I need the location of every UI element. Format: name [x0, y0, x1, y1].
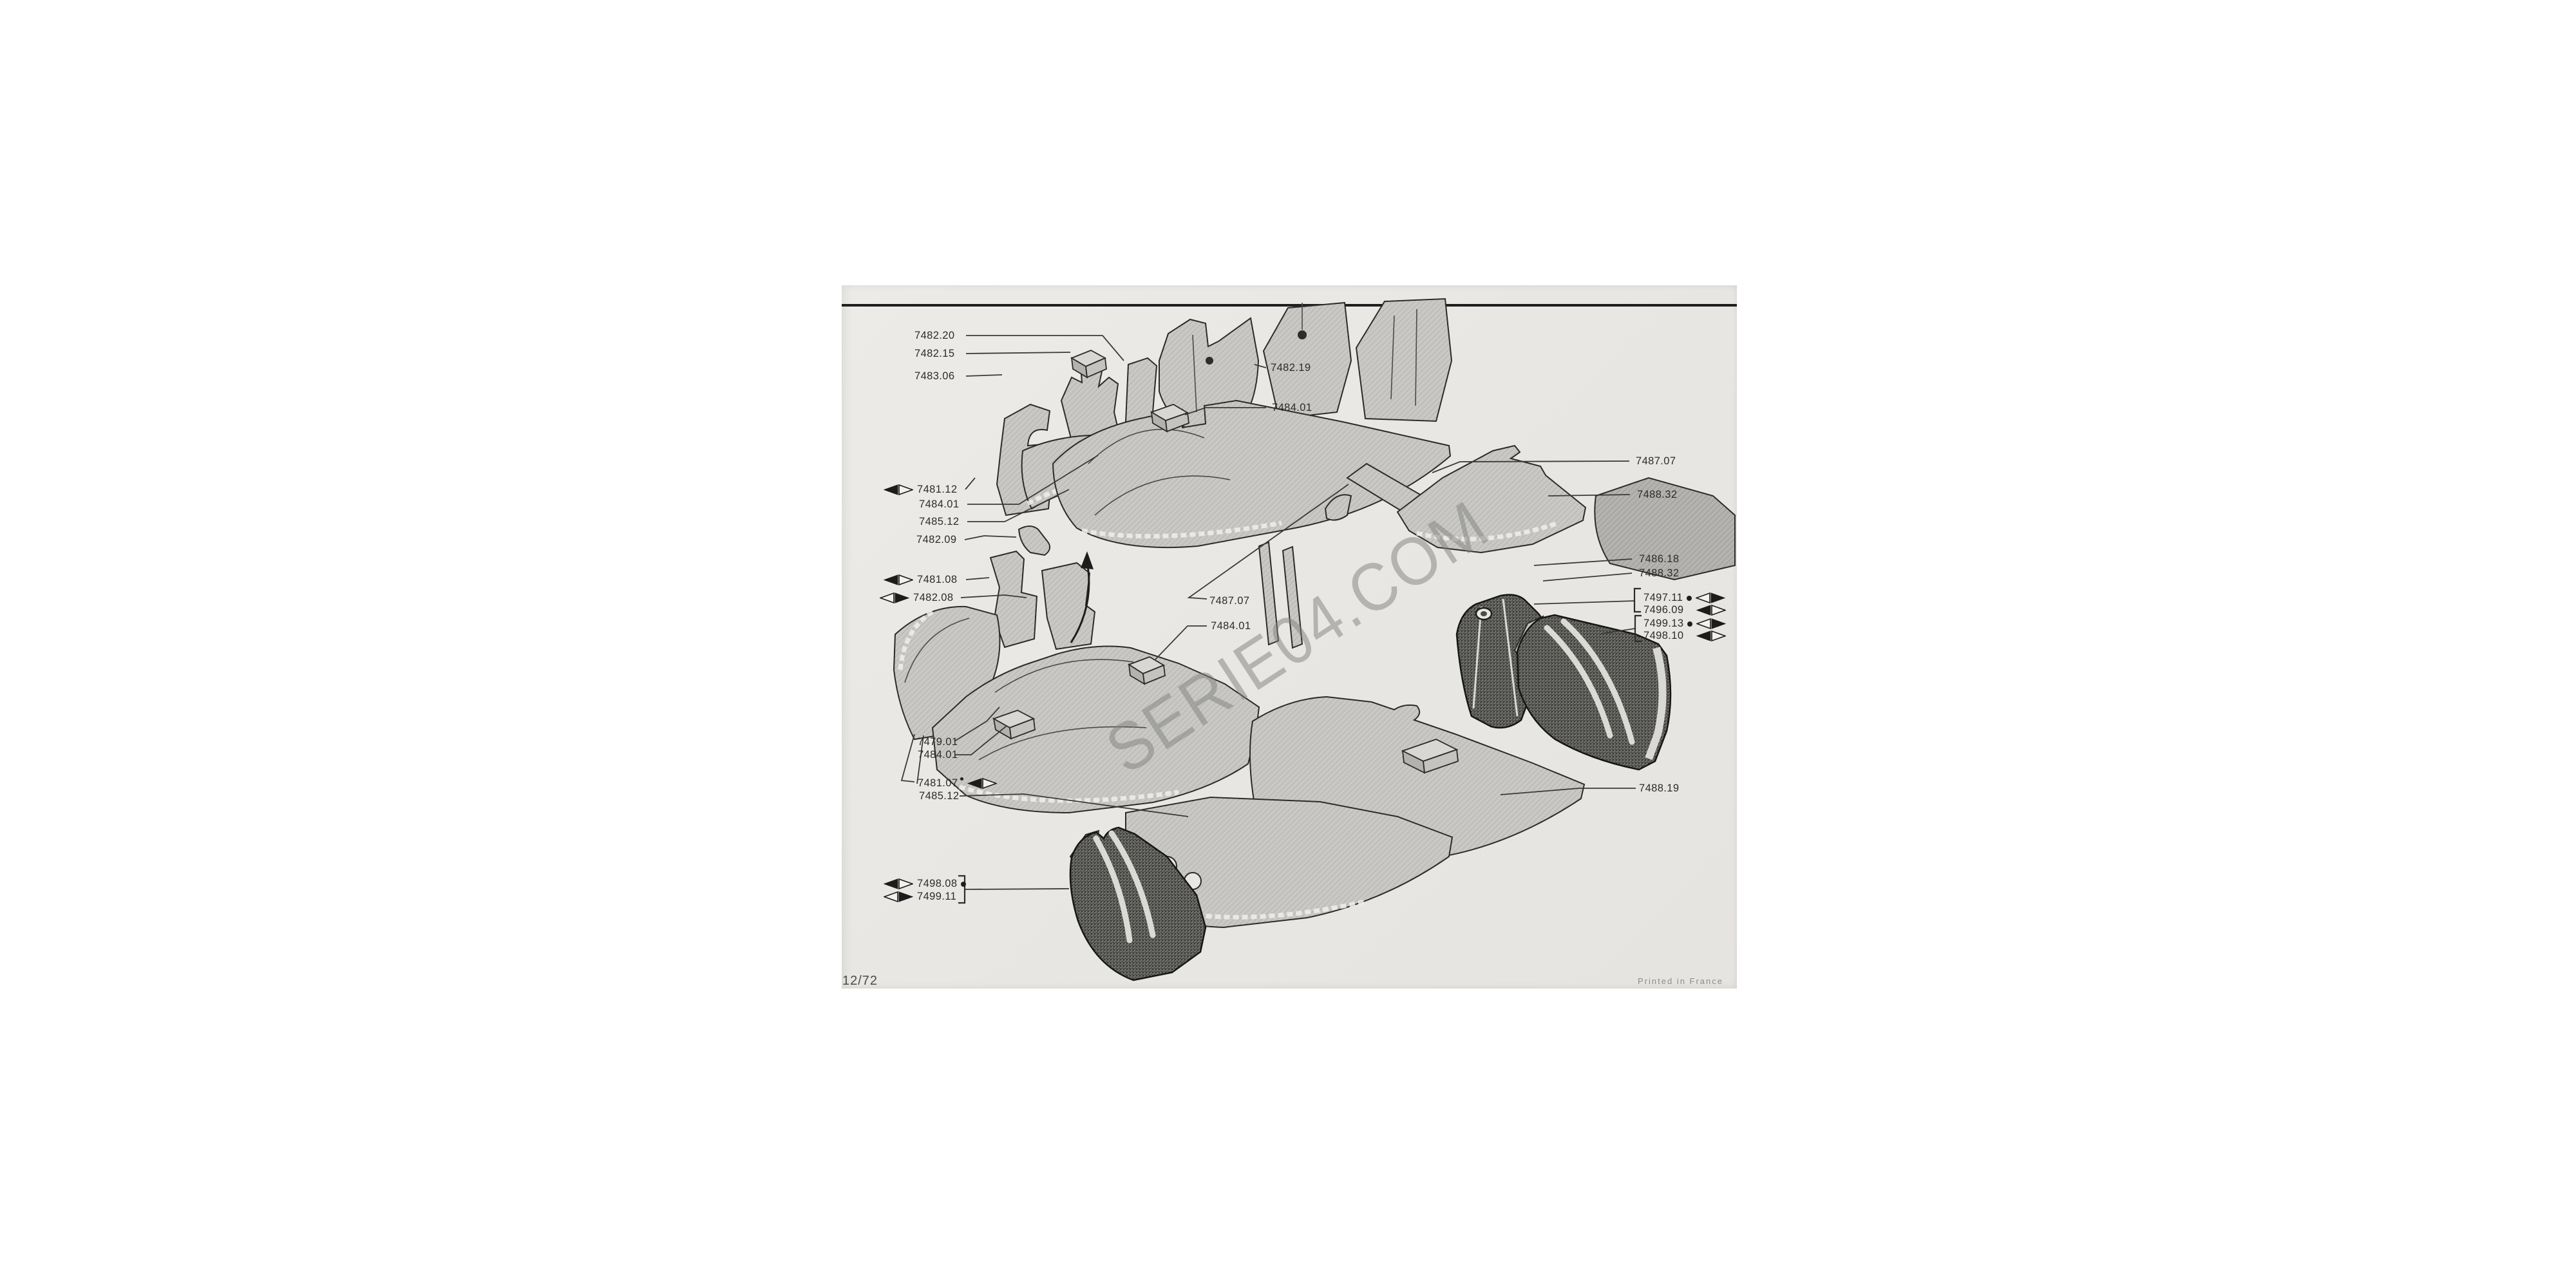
dot-marker	[961, 882, 966, 887]
parts-diagram	[0, 0, 2576, 1288]
printed-in-france-note: Printed in France	[1638, 976, 1723, 986]
floor-carpet-group	[1022, 401, 1735, 648]
part-label: 7488.32	[1637, 489, 1677, 501]
leader-7483-06	[966, 375, 1002, 376]
part-label: 7484.01	[1211, 620, 1251, 632]
part-label: 7484.01	[918, 749, 958, 761]
firewall-panel	[1264, 303, 1351, 419]
direction-arrow-left-icon	[884, 878, 913, 889]
leader-7482-09	[965, 536, 1016, 540]
part-label: 7482.20	[914, 330, 954, 342]
part-label: 7488.19	[1639, 782, 1679, 795]
column-grommet-hole	[1481, 611, 1487, 616]
pull-arrowhead	[1081, 551, 1094, 569]
leader-7481-08	[966, 578, 989, 580]
leader-7498-group	[965, 889, 1069, 889]
part-label: 7487.07	[1209, 595, 1249, 607]
part-label: 7498.10	[1643, 630, 1726, 642]
part-label: 7485.12	[919, 516, 959, 528]
part-label: 7479.01	[918, 736, 958, 748]
leader-7481-07	[902, 734, 914, 782]
part-label: 7482.19	[1271, 362, 1311, 374]
direction-arrow-right-icon	[884, 891, 913, 902]
leader-7482-15	[966, 352, 1070, 354]
part-label: 7499.11	[884, 891, 956, 903]
direction-arrow-right-icon	[880, 592, 909, 603]
part-label: 7485.12	[919, 790, 959, 802]
direction-arrow-left-icon	[884, 574, 913, 585]
part-label: 7488.32	[1639, 567, 1679, 580]
leader-7488-32-b	[1543, 573, 1632, 581]
part-label: 7482.08	[880, 592, 953, 604]
strap	[1283, 547, 1302, 648]
bracket-7497-group	[1634, 589, 1641, 612]
direction-arrow-right-icon	[1696, 592, 1725, 603]
part-label: 7481.07	[918, 777, 997, 790]
firewall-panel	[1356, 299, 1452, 421]
direction-arrow-left-icon	[967, 778, 997, 789]
direction-arrow-left-icon	[884, 484, 913, 495]
part-label: 7484.01	[1272, 402, 1312, 414]
part-label: 7499.13	[1643, 618, 1726, 630]
direction-arrow-left-icon	[1696, 630, 1726, 641]
strap	[1259, 542, 1278, 645]
part-label: 7481.12	[884, 484, 957, 496]
part-label: 7486.18	[1639, 553, 1679, 565]
leader-7497-group	[1534, 601, 1634, 604]
sup-dot-marker	[960, 777, 963, 781]
catalog-scan-canvas: SERIE04.COM 7482.20 7482.15 7483.06 7482…	[0, 0, 2576, 1288]
panel-grommet	[1206, 357, 1213, 365]
direction-arrow-left-icon	[1696, 605, 1726, 616]
part-label: 7484.01	[919, 498, 959, 511]
part-label: 7481.08	[884, 574, 957, 586]
part-7482-09-curl	[1019, 526, 1050, 555]
panel-grommet	[1298, 330, 1307, 339]
leader-7484-01-m	[1155, 626, 1207, 659]
sheet-number: 12/72	[842, 974, 878, 989]
dot-marker	[1687, 621, 1692, 627]
part-label: 7497.11	[1643, 592, 1725, 604]
part-label: 7487.07	[1636, 455, 1676, 468]
part-label: 7483.06	[914, 370, 954, 383]
part-label: 7482.15	[914, 348, 954, 360]
dot-marker	[1687, 596, 1692, 601]
direction-arrow-right-icon	[1696, 618, 1726, 629]
leader-7481-12	[965, 478, 975, 489]
part-label: 7482.09	[916, 534, 956, 546]
part-label: 7496.09	[1643, 604, 1726, 616]
part-label: 7498.08	[884, 878, 966, 890]
